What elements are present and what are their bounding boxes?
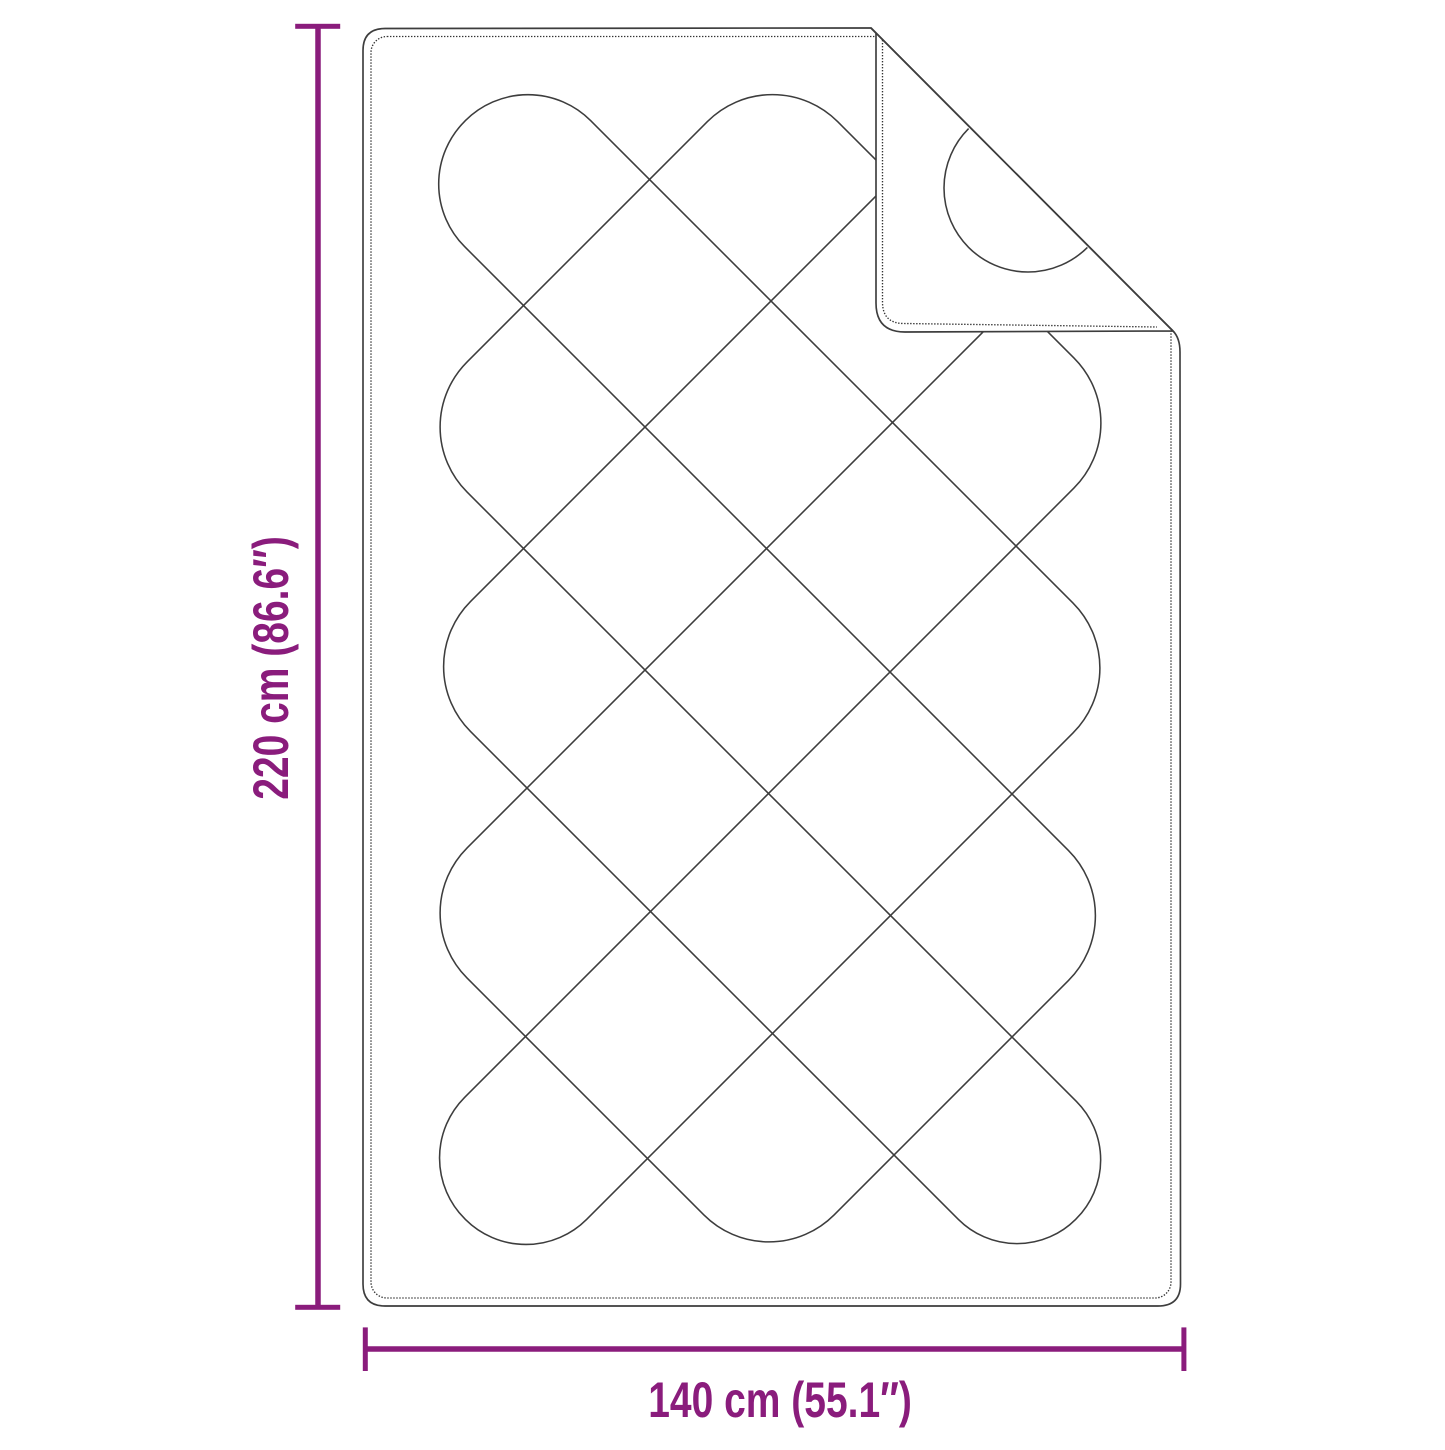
svg-text:220 cm (86.6″): 220 cm (86.6″)	[242, 536, 299, 800]
svg-text:140 cm (55.1″): 140 cm (55.1″)	[648, 1371, 912, 1428]
